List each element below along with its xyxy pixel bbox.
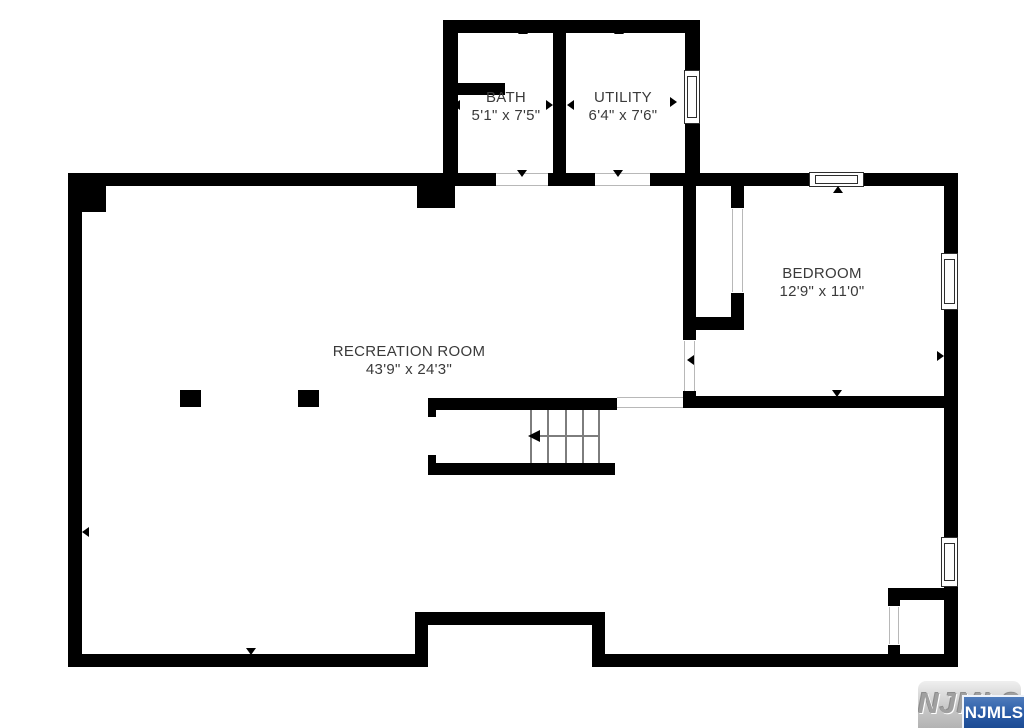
wall-closet-right-top-stub: [731, 186, 744, 208]
room-label-utility: UTILITY 6'4" x 7'6": [561, 89, 685, 125]
dimension-tick-icon: [518, 27, 528, 34]
wall-bedroom-south: [683, 396, 958, 408]
stair-tread: [598, 410, 600, 463]
wall-left: [68, 173, 82, 667]
wall-bottom-left-segment: [68, 654, 428, 667]
staircase: [428, 398, 618, 475]
room-dims: 5'1" x 7'5": [456, 107, 556, 125]
dimension-tick-icon: [517, 170, 527, 177]
wall-notch-top: [415, 612, 605, 625]
wall-between-doors: [548, 173, 595, 186]
room-label-bath: BATH 5'1" x 7'5": [456, 89, 556, 125]
room-dims: 6'4" x 7'6": [561, 107, 685, 125]
bedroom-top-window: [809, 172, 864, 187]
wall-bath-utility-top: [443, 20, 700, 33]
floor-plan: BATH 5'1" x 7'5" UTILITY 6'4" x 7'6" BED…: [0, 0, 1024, 728]
room-label-recreation: RECREATION ROOM 43'9" x 24'3": [294, 343, 524, 379]
njmls-badge-text: NJMLS: [965, 703, 1024, 723]
dimension-tick-icon: [832, 390, 842, 397]
wall-top-left-segment: [68, 173, 458, 186]
wall-pilaster-bath-corner: [417, 186, 455, 208]
dimension-tick-icon: [246, 648, 256, 655]
window-glass: [687, 76, 697, 118]
wall-utility-front-right: [650, 173, 700, 186]
room-name: RECREATION ROOM: [294, 343, 524, 361]
dimension-tick-icon: [687, 355, 694, 365]
br-closet-opening: [889, 607, 899, 644]
wall-bath-front-left: [458, 173, 496, 186]
wall-br-closet-left-bottom-stub: [888, 645, 900, 667]
window-glass: [944, 543, 955, 581]
room-dims: 12'9" x 11'0": [738, 283, 906, 301]
hall-opening: [617, 397, 683, 408]
stair-direction-line: [540, 435, 598, 437]
utility-window: [684, 70, 700, 124]
support-column: [180, 390, 201, 407]
room-label-bedroom: BEDROOM 12'9" x 11'0": [738, 265, 906, 301]
support-column: [298, 390, 319, 407]
room-name: BATH: [456, 89, 556, 107]
bedroom-door-opening: [684, 341, 695, 391]
dimension-tick-icon: [833, 186, 843, 193]
room-dims: 43'9" x 24'3": [294, 361, 524, 379]
recreation-right-window: [941, 537, 958, 587]
dimension-tick-icon: [614, 27, 624, 34]
dimension-tick-icon: [82, 527, 89, 537]
window-glass: [944, 259, 955, 304]
dimension-tick-icon: [613, 170, 623, 177]
window-glass: [815, 175, 858, 184]
njmls-badge: NJMLS: [962, 695, 1024, 728]
room-name: UTILITY: [561, 89, 685, 107]
wall-bottom-right-segment: [592, 654, 958, 667]
wall-closet-bottom: [683, 317, 744, 330]
stair-direction-arrow-icon: [528, 430, 540, 442]
dimension-tick-icon: [245, 179, 255, 186]
room-name: BEDROOM: [738, 265, 906, 283]
wall-br-closet-left-top-stub: [888, 588, 900, 606]
bedroom-right-window: [941, 253, 958, 310]
dimension-tick-icon: [937, 351, 944, 361]
